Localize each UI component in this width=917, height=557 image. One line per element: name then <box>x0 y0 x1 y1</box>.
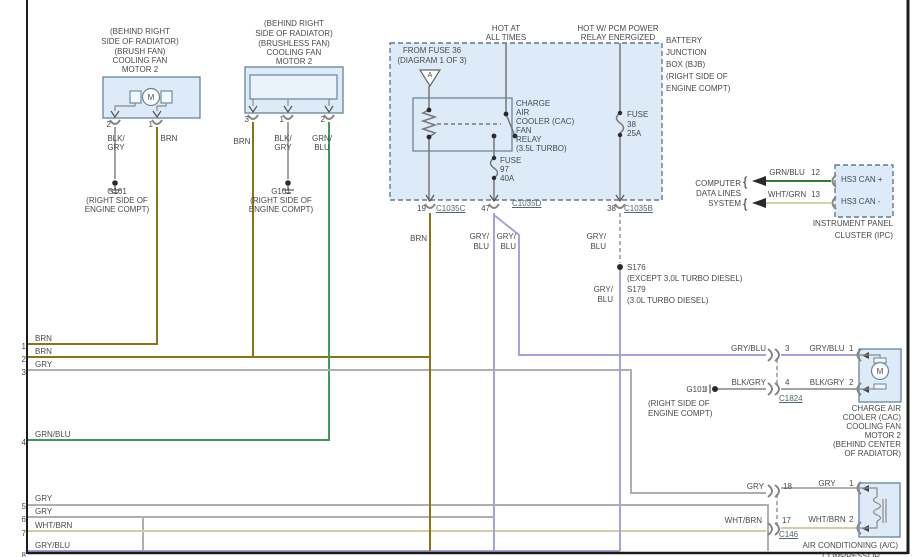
ground-location: (RIGHT SIDE OF <box>648 399 710 408</box>
splice-note: (EXCEPT 3.0L TURBO DIESEL) <box>627 274 742 283</box>
pin-number: 2 <box>849 515 853 524</box>
motor-m-glyph: M <box>148 93 155 102</box>
wire-color-label: GRY/ <box>594 285 613 294</box>
pin-number: 1 <box>849 479 853 488</box>
row-wire-label: GRY <box>35 494 52 503</box>
ac-compressor-name: COMPRESSOR <box>822 552 880 557</box>
bjb-title: ENGINE COMPT) <box>666 84 730 93</box>
power-note: ALL TIMES <box>486 33 526 42</box>
pin-number: 19 <box>417 204 426 213</box>
brushless-fan-title: COOLING FAN <box>267 48 322 57</box>
system-label: COMPUTER <box>695 179 741 188</box>
ground-location: ENGINE COMPT) <box>648 409 712 418</box>
ground-id: G101 <box>107 187 127 196</box>
row-wire-label: GRN/BLU <box>35 430 71 439</box>
row-wire-label: GRY <box>35 507 52 516</box>
splice-id: S179 <box>627 285 646 294</box>
brush-fan-title: (BRUSH FAN) <box>114 47 165 56</box>
wire-color-label: BLU <box>500 242 516 251</box>
row-number: 7 <box>22 529 26 538</box>
bjb-title: BATTERY <box>666 36 702 45</box>
wire-color-label: GRY <box>747 482 764 491</box>
from-fuse-note: (DIAGRAM 1 OF 3) <box>397 56 466 65</box>
wire-color-label: GRY/BLU <box>810 344 845 353</box>
row-number: 6 <box>22 515 26 524</box>
wire-color-label: WHT/BRN <box>725 516 762 525</box>
connector-link-c1035d[interactable]: C1035D <box>512 199 541 208</box>
ground-location: (RIGHT SIDE OF <box>250 196 312 205</box>
pin-number: 18 <box>783 482 792 491</box>
pin-number: 4 <box>785 378 789 387</box>
connector-link-c146[interactable]: C146 <box>779 530 798 539</box>
wire-color-label: BLK/GRY <box>731 378 766 387</box>
splice-id: S176 <box>627 263 646 272</box>
module-name: INSTRUMENT PANEL <box>813 219 893 228</box>
cac-motor-name: COOLER (CAC) <box>843 413 901 422</box>
splice-note: (3.0L TURBO DIESEL) <box>627 296 708 305</box>
wire-color-label: BRN <box>234 137 251 146</box>
module-name: CLUSTER (IPC) <box>835 231 893 240</box>
wire-color-label: BLU <box>597 295 613 304</box>
row-number: 2 <box>22 355 26 364</box>
wire-color-label: GRY/ <box>470 232 489 241</box>
label-layer: (BEHIND RIGHT SIDE OF RADIATOR) (BRUSH F… <box>0 0 917 557</box>
cac-motor-name: COOLING FAN <box>846 422 901 431</box>
brushless-fan-title: SIDE OF RADIATOR) <box>255 29 333 38</box>
cac-motor-name: CHARGE AIR <box>852 404 901 413</box>
power-note: RELAY ENERGIZED <box>581 33 655 42</box>
wire-color-label: GRY <box>107 143 124 152</box>
wire-color-label: BLU <box>590 242 606 251</box>
can-pin-name: HS3 CAN - <box>841 197 881 206</box>
ground-id: G101 <box>271 187 291 196</box>
row-wire-label: BRN <box>35 334 52 343</box>
pin-number: 17 <box>782 516 791 525</box>
brushless-fan-title: MOTOR 2 <box>276 57 312 66</box>
ground-id: G101 <box>686 385 706 394</box>
wire-color-label: GRY <box>274 143 291 152</box>
system-label: SYSTEM <box>708 199 741 208</box>
connector-link-c1035b[interactable]: C1035B <box>624 204 653 213</box>
wire-color-label: WHT/BRN <box>808 515 845 524</box>
bjb-title: (RIGHT SIDE OF <box>666 72 728 81</box>
fuse-label: 25A <box>627 129 641 138</box>
system-label: DATA LINES <box>696 189 741 198</box>
ac-compressor-name: AIR CONDITIONING (A/C) <box>802 541 898 550</box>
row-wire-label: BRN <box>35 347 52 356</box>
bjb-title: BOX (BJB) <box>666 60 705 69</box>
power-note: HOT W/ PCM POWER <box>577 24 658 33</box>
connector-link-c1035c[interactable]: C1035C <box>436 204 465 213</box>
pin-number: 38 <box>607 204 616 213</box>
ground-location: ENGINE COMPT) <box>85 205 149 214</box>
relay-label: AIR <box>516 108 529 117</box>
fuse-label: 40A <box>500 174 514 183</box>
pin-number: 13 <box>811 190 820 199</box>
pin-number: 12 <box>811 168 820 177</box>
relay-label: RELAY <box>516 135 542 144</box>
pin-number: 47 <box>481 204 490 213</box>
brace-glyph: { <box>743 196 747 211</box>
wire-color-label: BLU <box>314 143 330 152</box>
can-pin-name: HS3 CAN + <box>841 175 883 184</box>
row-wire-label: GRY <box>35 360 52 369</box>
row-number: 5 <box>22 502 26 511</box>
brush-fan-title: (BEHIND RIGHT <box>110 27 170 36</box>
relay-label: (3.5L TURBO) <box>516 144 567 153</box>
cac-motor-name: OF RADIATOR) <box>844 449 901 458</box>
brush-fan-title: SIDE OF RADIATOR) <box>101 37 179 46</box>
ground-location: ENGINE COMPT) <box>249 205 313 214</box>
fuse-label: 38 <box>627 120 636 129</box>
row-wire-label: WHT/BRN <box>35 521 72 530</box>
wire-color-label: BLK/ <box>274 134 291 143</box>
fuse-label: FUSE <box>500 156 521 165</box>
triangle-letter: A <box>428 71 433 80</box>
brush-fan-title: MOTOR 2 <box>122 65 158 74</box>
brush-fan-title: COOLING FAN <box>113 56 168 65</box>
relay-label: CHARGE <box>516 99 550 108</box>
wire-color-label: BLK/ <box>107 134 124 143</box>
relay-label: COOLER (CAC) <box>516 117 574 126</box>
motor-m-glyph: M <box>877 367 884 376</box>
cac-motor-name: (BEHIND CENTER <box>833 440 901 449</box>
brace-glyph: { <box>743 174 747 189</box>
pin-number: 3 <box>245 115 249 124</box>
wire-color-label: GRY/BLU <box>731 344 766 353</box>
pin-number: 1 <box>849 344 853 353</box>
brushless-fan-title: (BEHIND RIGHT <box>264 19 324 28</box>
wiring-diagram-page: (BEHIND RIGHT SIDE OF RADIATOR) (BRUSH F… <box>0 0 917 557</box>
relay-label: FAN <box>516 126 532 135</box>
row-number: 4 <box>22 438 26 447</box>
row-wire-label: GRY/BLU <box>35 541 70 550</box>
pin-number: 2 <box>849 378 853 387</box>
pin-number: 2 <box>321 115 325 124</box>
fuse-label: 97 <box>500 165 509 174</box>
power-note: HOT AT <box>492 24 520 33</box>
wire-color-label: GRY <box>818 479 835 488</box>
pin-number: 3 <box>785 344 789 353</box>
wire-color-label: WHT/GRN <box>768 190 806 199</box>
brushless-fan-title: (BRUSHLESS FAN) <box>258 39 330 48</box>
wire-color-label: BLU <box>473 242 489 251</box>
wire-color-label: BLK/GRY <box>810 378 845 387</box>
from-fuse-note: FROM FUSE 36 <box>403 46 461 55</box>
ground-location: (RIGHT SIDE OF <box>86 196 148 205</box>
wire-color-label: BRN <box>161 134 178 143</box>
pin-number: 1 <box>280 115 284 124</box>
pin-number: 2 <box>107 120 111 129</box>
row-number: 3 <box>22 368 26 377</box>
row-number: 8 <box>22 551 26 557</box>
wire-color-label: GRY/ <box>497 232 516 241</box>
bjb-title: JUNCTION <box>666 48 706 57</box>
fuse-label: FUSE <box>627 110 648 119</box>
wire-color-label: BRN <box>410 234 427 243</box>
cac-motor-name: MOTOR 2 <box>865 431 901 440</box>
row-number: 1 <box>22 342 26 351</box>
wire-color-label: GRY/ <box>587 232 606 241</box>
connector-link-c1824[interactable]: C1824 <box>779 394 803 403</box>
pin-number: 1 <box>149 120 153 129</box>
wire-color-label: GRN/ <box>312 134 332 143</box>
wire-color-label: GRN/BLU <box>769 168 805 177</box>
